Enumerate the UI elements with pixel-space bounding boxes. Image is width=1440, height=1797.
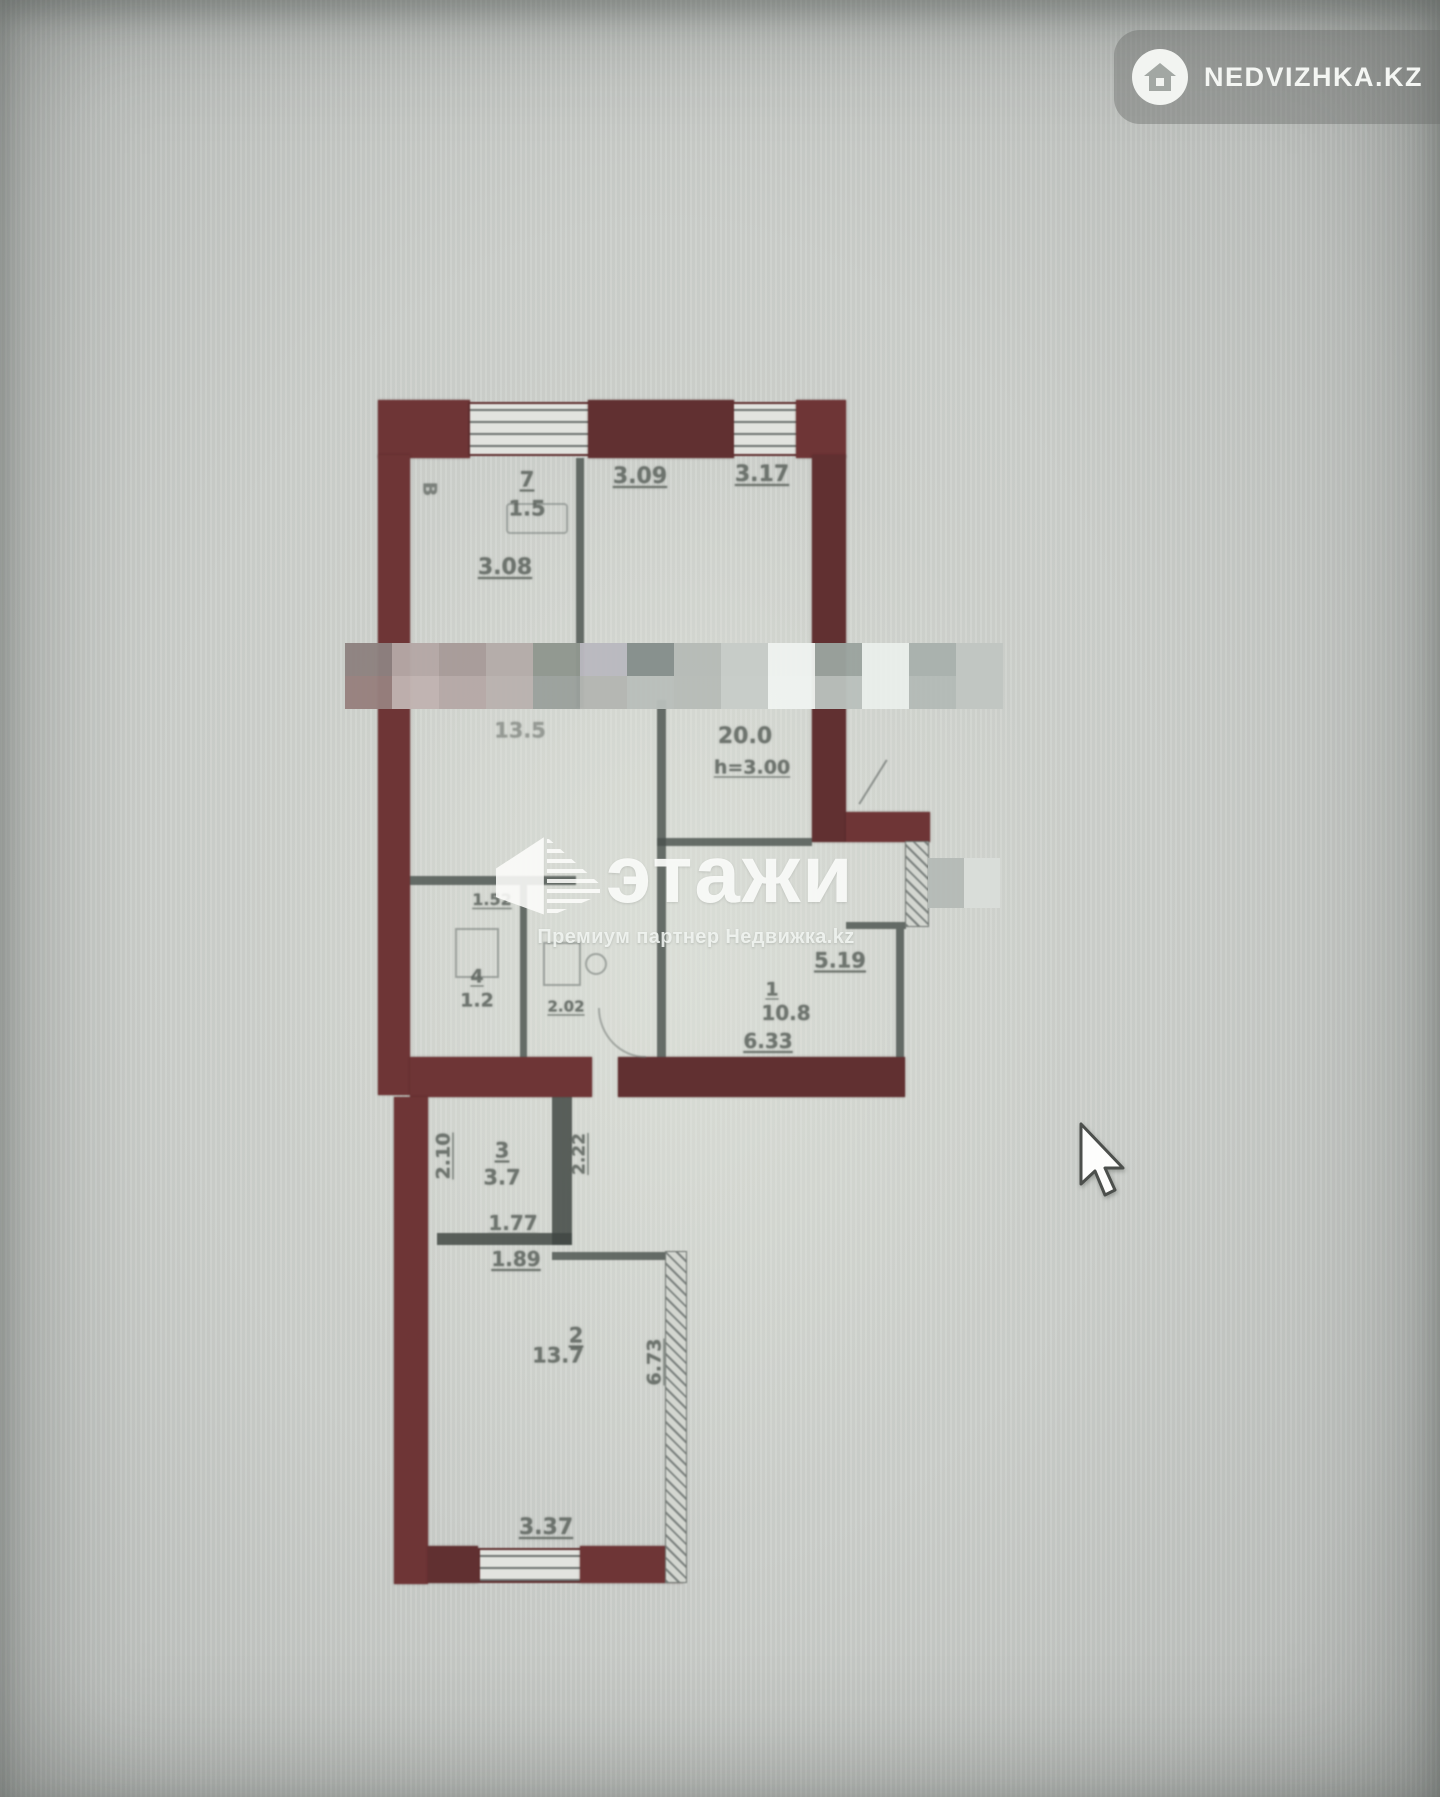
wall-segment (410, 1057, 592, 1097)
wall-segment (378, 400, 470, 458)
censor-block (580, 643, 627, 676)
censor-block (768, 643, 815, 676)
censor-block (909, 643, 956, 676)
nedvizhka-badge: NEDVIZHKA.KZ (1114, 30, 1440, 124)
plan-label: 3.17 (735, 464, 789, 486)
wall-segment (378, 455, 410, 1095)
plan-label: h=3.00 (714, 759, 790, 778)
wall-segment (588, 400, 734, 458)
badge-label: NEDVIZHKA.KZ (1204, 62, 1423, 93)
partition-wall (657, 700, 666, 1057)
plan-label: 1.89 (491, 1249, 540, 1269)
plan-label: 1.5 (508, 499, 545, 520)
partition-wall (846, 922, 906, 929)
censor-block (721, 643, 768, 676)
plan-label: 4 (470, 968, 483, 987)
censor-block (674, 676, 721, 709)
partition-wall (520, 885, 527, 1057)
censor-block (486, 676, 533, 709)
censor-block (862, 676, 909, 709)
censor-block (533, 676, 580, 709)
censor-block (439, 643, 486, 676)
plan-label: 3.08 (478, 557, 532, 579)
plan-label: 3 (495, 1141, 510, 1162)
censor-block (486, 643, 533, 676)
censor-block (627, 643, 674, 676)
censor-block (964, 858, 1000, 908)
censor-block (392, 643, 439, 676)
plan-label: 1.77 (488, 1213, 537, 1233)
wall-segment (796, 400, 846, 458)
partition-wall (410, 876, 576, 885)
plan-label: 2.02 (547, 1000, 584, 1015)
censor-block (345, 676, 392, 709)
plan-label: 5.19 (814, 951, 866, 972)
plan-label: 20.0 (718, 726, 772, 748)
censor-block (956, 676, 1003, 709)
wall-segment (394, 1097, 428, 1584)
plan-label: 1.52 (472, 892, 511, 908)
plan-label: 6.33 (743, 1031, 792, 1051)
censor-block (439, 676, 486, 709)
censor-block (815, 643, 862, 676)
censor-block (721, 676, 768, 709)
plan-label: 2.10 (435, 1133, 454, 1180)
censor-block (580, 676, 627, 709)
censor-block (862, 643, 909, 676)
plan-label: В (420, 482, 439, 496)
door-leaf (858, 759, 887, 804)
window (468, 402, 592, 456)
wall-segment (428, 1546, 478, 1583)
plan-label: 3.37 (519, 1517, 573, 1539)
plan-label: 6.73 (646, 1339, 665, 1386)
censor-block (627, 676, 674, 709)
censored-region (345, 643, 1003, 709)
censor-block (768, 676, 815, 709)
door-arc (598, 1008, 646, 1058)
plan-label: 3.7 (483, 1168, 520, 1189)
plan-label: 2.22 (572, 1133, 589, 1175)
wall-segment (618, 1057, 905, 1097)
partition-wall (657, 838, 812, 846)
sink-fixture (585, 953, 607, 975)
censor-block (533, 643, 580, 676)
censor-block (956, 643, 1003, 676)
room-wall-hatched (666, 1252, 686, 1582)
entry-wall-hatched (906, 842, 928, 926)
plan-label: 13.5 (494, 721, 546, 742)
wall-segment (846, 812, 930, 842)
censor-block (928, 858, 964, 908)
censored-region-small (928, 858, 1000, 908)
screen-photo: В71.53.093.173.0813.520.0h=3.001.5241.22… (0, 0, 1440, 1797)
plan-label: 1.2 (460, 992, 494, 1011)
plan-label: 1 (765, 981, 778, 1000)
partition-wall (552, 1252, 678, 1260)
floor-plan: В71.53.093.173.0813.520.0h=3.001.5241.22… (0, 0, 1440, 1797)
censor-block (345, 643, 392, 676)
wc-fixture (543, 942, 581, 986)
house-icon (1132, 49, 1188, 105)
plan-label: 13.7 (532, 1346, 584, 1367)
plan-label: 3.09 (613, 466, 667, 488)
partition-wall (896, 929, 904, 1057)
censor-block (815, 676, 862, 709)
censor-block (674, 643, 721, 676)
mouse-cursor (1078, 1122, 1134, 1206)
window (732, 402, 800, 456)
censor-block (909, 676, 956, 709)
censor-block (392, 676, 439, 709)
plan-label: 7 (520, 470, 535, 491)
plan-label: 10.8 (761, 1003, 810, 1023)
window (478, 1548, 584, 1583)
